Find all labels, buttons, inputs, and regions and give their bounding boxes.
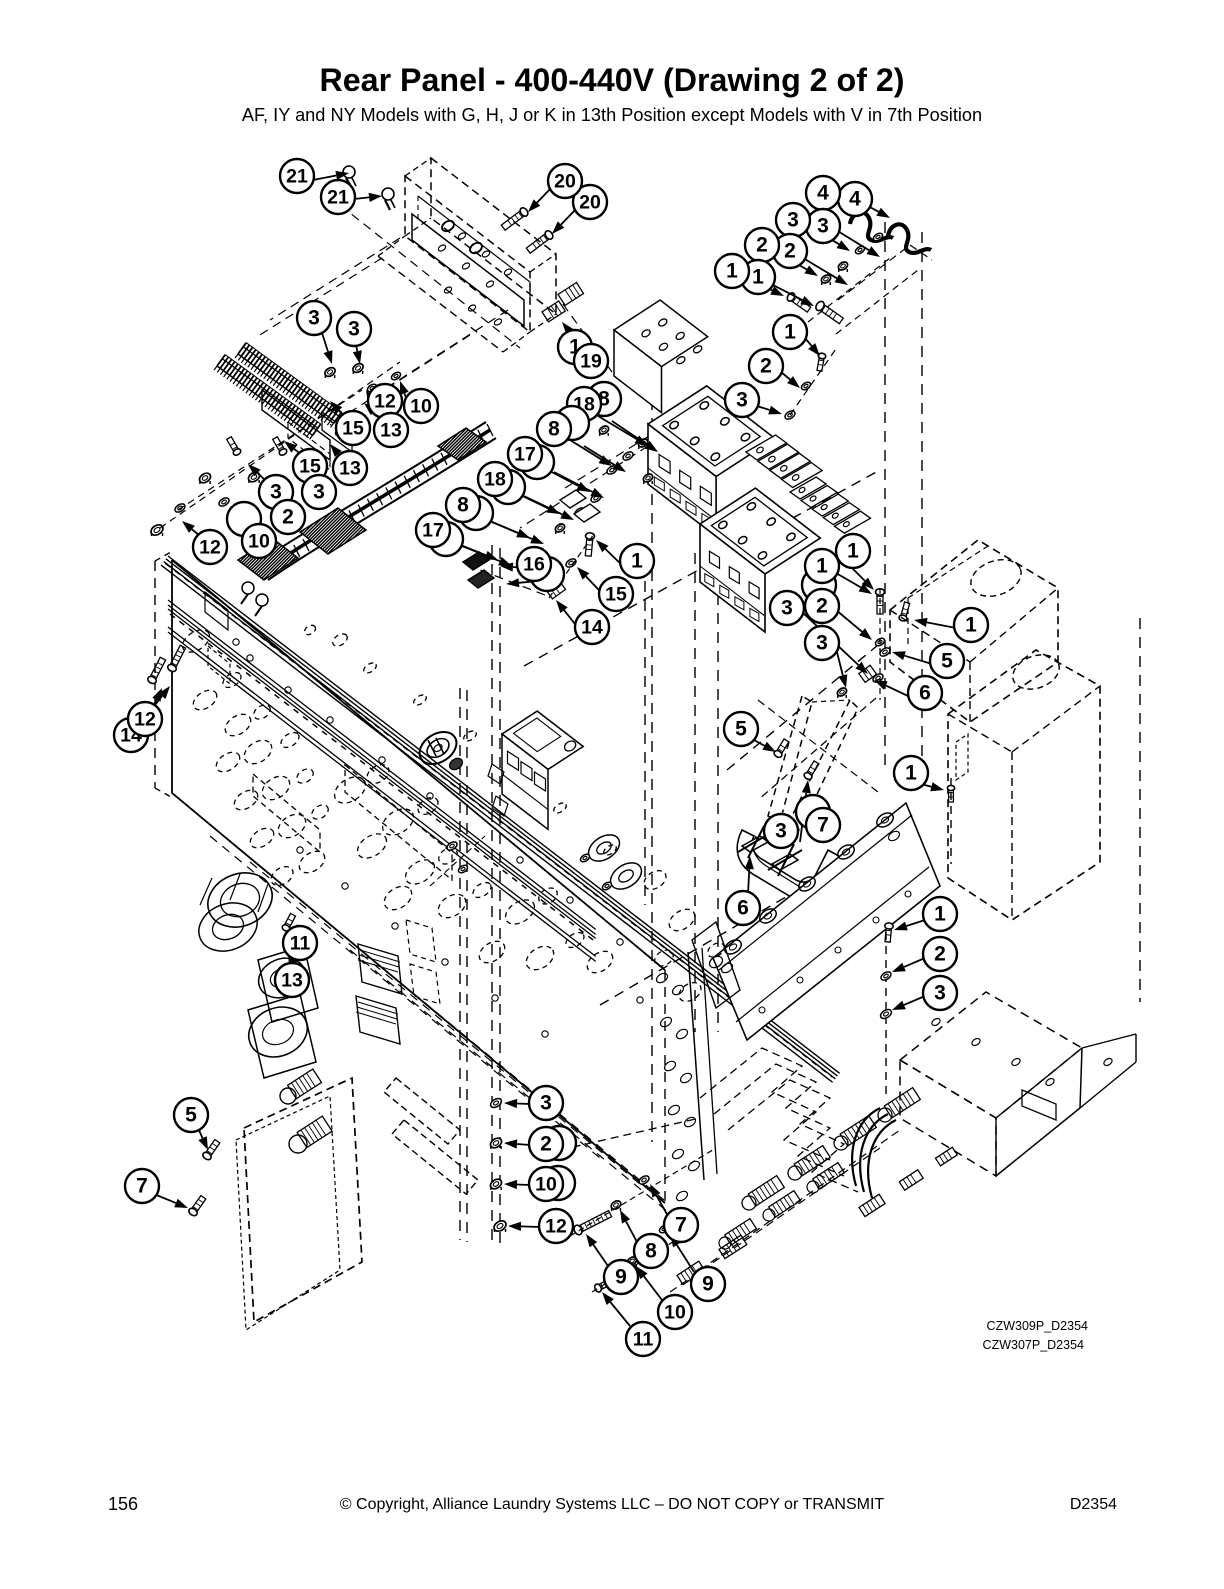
- svg-text:10: 10: [664, 1302, 686, 1324]
- svg-text:15: 15: [342, 418, 364, 440]
- svg-text:3: 3: [781, 597, 793, 620]
- svg-text:CZW307P_D2354: CZW307P_D2354: [983, 1338, 1084, 1352]
- svg-text:4: 4: [849, 188, 861, 211]
- svg-text:20: 20: [554, 171, 576, 193]
- svg-text:1: 1: [752, 266, 764, 289]
- svg-text:13: 13: [281, 970, 303, 992]
- svg-text:12: 12: [134, 709, 156, 731]
- svg-text:9: 9: [702, 1273, 714, 1296]
- svg-text:3: 3: [775, 820, 787, 843]
- svg-text:3: 3: [787, 209, 799, 232]
- svg-text:16: 16: [523, 554, 545, 576]
- svg-text:19: 19: [580, 351, 602, 373]
- svg-text:3: 3: [270, 481, 282, 504]
- svg-text:AF, IY and NY Models with G, H: AF, IY and NY Models with G, H, J or K i…: [242, 105, 982, 125]
- svg-text:21: 21: [327, 187, 349, 209]
- svg-text:12: 12: [199, 537, 221, 559]
- svg-text:13: 13: [339, 458, 361, 480]
- svg-text:6: 6: [919, 682, 931, 705]
- svg-text:1: 1: [934, 903, 946, 926]
- svg-text:2: 2: [760, 355, 772, 378]
- svg-text:5: 5: [941, 650, 953, 673]
- svg-text:10: 10: [410, 396, 432, 418]
- svg-text:20: 20: [579, 192, 601, 214]
- svg-text:3: 3: [736, 389, 748, 412]
- svg-text:12: 12: [545, 1216, 567, 1238]
- svg-text:13: 13: [380, 420, 402, 442]
- svg-text:2: 2: [282, 506, 294, 529]
- svg-text:7: 7: [136, 1175, 148, 1198]
- svg-text:1: 1: [905, 762, 917, 785]
- svg-text:4: 4: [817, 182, 829, 205]
- svg-text:10: 10: [535, 1174, 557, 1196]
- svg-text:3: 3: [816, 632, 828, 655]
- svg-text:3: 3: [540, 1092, 552, 1115]
- svg-text:14: 14: [581, 617, 603, 639]
- svg-text:2: 2: [540, 1133, 552, 1156]
- svg-text:Rear Panel - 400-440V (Drawing: Rear Panel - 400-440V (Drawing 2 of 2): [320, 62, 905, 98]
- svg-text:3: 3: [313, 481, 325, 504]
- svg-text:2: 2: [784, 240, 796, 263]
- svg-text:6: 6: [737, 897, 749, 920]
- svg-text:1: 1: [726, 260, 738, 283]
- svg-text:3: 3: [348, 318, 360, 341]
- svg-text:18: 18: [484, 469, 506, 491]
- svg-text:17: 17: [514, 444, 536, 466]
- svg-text:11: 11: [633, 1329, 654, 1351]
- svg-text:1: 1: [965, 614, 977, 637]
- svg-text:17: 17: [422, 520, 444, 542]
- svg-text:3: 3: [817, 215, 829, 238]
- svg-text:12: 12: [374, 391, 396, 413]
- svg-text:CZW309P_D2354: CZW309P_D2354: [987, 1319, 1088, 1333]
- svg-text:10: 10: [248, 531, 270, 553]
- svg-text:11: 11: [290, 933, 311, 955]
- svg-text:3: 3: [934, 982, 946, 1005]
- svg-text:156: 156: [108, 1494, 138, 1514]
- svg-text:7: 7: [675, 1214, 687, 1237]
- svg-text:3: 3: [308, 307, 320, 330]
- svg-text:5: 5: [735, 718, 747, 741]
- svg-text:1: 1: [847, 540, 859, 563]
- svg-text:21: 21: [286, 166, 308, 188]
- svg-text:2: 2: [934, 943, 946, 966]
- svg-text:8: 8: [548, 418, 560, 441]
- svg-text:8: 8: [645, 1240, 657, 1263]
- svg-text:7: 7: [817, 814, 829, 837]
- svg-text:1: 1: [784, 321, 796, 344]
- svg-text:5: 5: [185, 1104, 197, 1127]
- svg-text:15: 15: [605, 584, 627, 606]
- svg-text:9: 9: [615, 1266, 627, 1289]
- svg-text:D2354: D2354: [1070, 1496, 1117, 1513]
- svg-text:2: 2: [756, 234, 768, 257]
- svg-text:1: 1: [816, 555, 828, 578]
- svg-text:8: 8: [457, 494, 469, 517]
- svg-text:2: 2: [816, 595, 828, 618]
- svg-text:1: 1: [631, 550, 643, 573]
- svg-text:© Copyright, Alliance Laundry: © Copyright, Alliance Laundry Systems LL…: [340, 1496, 885, 1513]
